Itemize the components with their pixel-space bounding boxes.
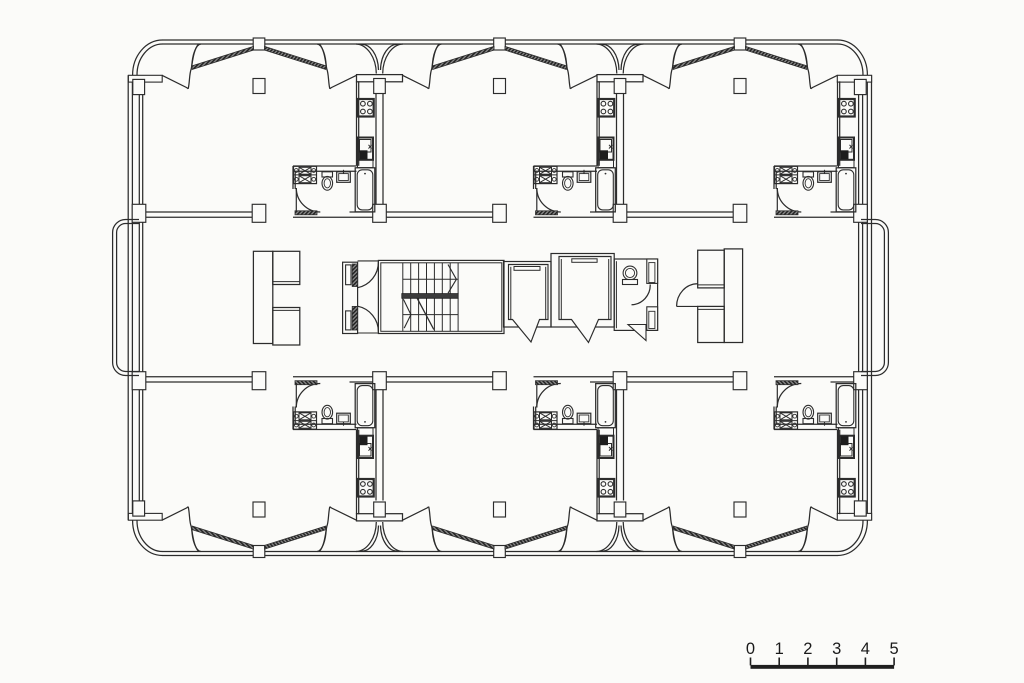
svg-text:5: 5	[890, 640, 899, 658]
svg-text:4: 4	[861, 640, 870, 658]
svg-text:0: 0	[746, 640, 755, 658]
svg-text:3: 3	[832, 640, 841, 658]
svg-text:1: 1	[775, 640, 784, 658]
svg-text:2: 2	[803, 640, 812, 658]
